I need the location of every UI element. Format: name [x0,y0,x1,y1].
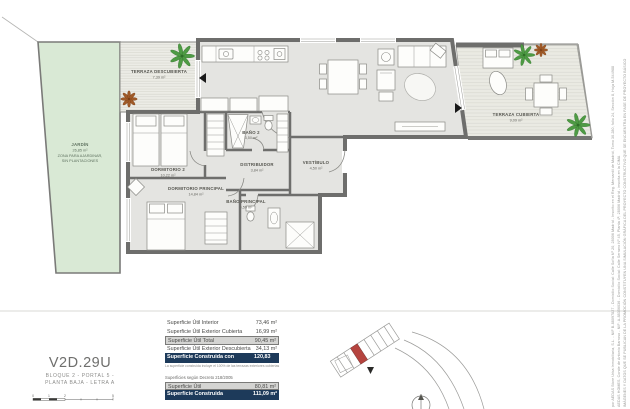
room-label-vestibulo: VESTÍBULO [303,160,330,165]
room-label-jardin: JARDÍN [71,142,88,147]
room-area-terraza-descubierta: 7,39 m² [153,76,167,80]
legal-disclaimer: por AEDAS Store Urba Inmobiliaria, S.L. … [611,9,628,407]
wardrobe [205,212,227,244]
ottoman [379,92,393,101]
chair [320,79,327,89]
row-label: Superficie Construida [167,390,223,400]
row-value: 73,46 m² [256,319,277,328]
scale-label: 2 [64,394,66,398]
shower [286,222,314,248]
pillow [136,116,156,126]
room-area-terraza-cubierta: 9,09 m² [510,119,524,123]
table-row: Superficie Útil Exterior Descubierta 34,… [165,345,279,354]
chair [540,75,552,82]
table-row-built: Superficie Construida con Comunes 120,83… [165,353,279,363]
room-area-jardin: 26,85 m² [73,149,89,153]
chair [560,88,567,100]
scale-bar: 0 1 2 5 [32,394,114,400]
washbasin [250,116,261,124]
table-row: Superficie Útil Exterior Cubierta 16,99 … [165,328,279,337]
room-area-bano-principal: 4,59 m² [240,206,254,210]
room-label-bano-principal: BAÑO PRINCIPAL [226,199,266,204]
outdoor-table [534,83,558,107]
table-row-decree: Superficie Construida 111,09 m² [165,390,279,400]
row-label: Superficie Útil Total [168,337,214,344]
row-value: 111,09 m² [253,390,277,400]
room-label-terraza-descubierta: TERRAZA DESCUBIERTA [131,69,187,74]
chair [360,79,367,89]
row-label: Superficie Útil Exterior Cubierta [167,328,242,337]
site-plan [330,323,484,409]
kitchen-counter [202,46,288,62]
room-label-dormitorio-principal: DORMITORIO PRINCIPAL [168,186,224,191]
unit-id-block: V2D.29U BLOQUE 2 - PORTAL 5 - PLANTA BAJ… [40,355,120,386]
sink-icon [219,49,233,59]
row-value: 34,13 m² [256,345,277,354]
dining-table [328,60,358,94]
decree-heading: Superficies según Decreto 218/2005 [165,375,279,380]
wardrobe [207,114,224,156]
room-label-dormitorio2: DORMITORIO 2 [151,167,185,172]
hall-closet [277,114,288,152]
side-table [378,49,394,65]
chair [540,108,552,115]
scale-label: 0 [32,394,34,398]
row-label: Superficie Útil Exterior Descubierta [167,345,251,354]
round-plant-icon [534,43,548,57]
table-row-decree: Superficie Útil 80,81 m² [165,382,279,391]
room-note2-jardin: SIN PLANTACIONES [62,159,99,163]
room-area-distribuidor: 3,84 m² [251,169,265,173]
surface-table: Superficie Útil Interior 73,46 m² Superf… [165,319,279,400]
room-area-vestibulo: 4,50 m² [310,167,324,171]
room-note-jardin: ZONA PARA AJARDINAR, [58,154,103,158]
cabinet [230,98,257,111]
row-value: 80,81 m² [255,383,276,390]
table-note: La superficie construida incluye el 100%… [165,364,279,368]
disclaimer-line: IMÁGENES Y DATOS QUE SE PUBLICAN DE LA P… [623,9,629,407]
table-row: Superficie Útil Interior 73,46 m² [165,319,279,328]
unit-code: V2D.29U [40,355,120,371]
room-label-distribuidor: DISTRIBUIDOR [240,162,274,167]
pillow [168,204,183,213]
oven-icon [274,49,285,60]
toilet [264,116,273,131]
room-area-bano2: 3,50 m² [245,136,259,140]
floor-plan-sheet: JARDÍN 26,85 m² ZONA PARA AJARDINAR, SIN… [0,0,630,409]
room-area-dormitorio2: 10,22 m² [161,174,177,178]
row-label: Superficie Útil Interior [167,319,219,328]
pillow [486,50,497,57]
compass-icon [412,394,430,409]
row-value: 16,99 m² [256,328,277,337]
floor-plan-drawing: JARDÍN 26,85 m² ZONA PARA AJARDINAR, SIN… [0,0,630,409]
scale-label: 1 [48,394,50,398]
table-row-total: Superficie Útil Total 90,45 m² [165,336,279,345]
unit-pointer [367,367,374,374]
round-plant-icon [121,91,138,108]
disclaimer-line: por AEDAS Store Urba Inmobiliaria, S.L. … [611,9,617,407]
room-label-bano2: BAÑO 2 [242,130,260,135]
chair [320,64,327,74]
room-area-dormitorio-principal: 14,84 m² [189,193,205,197]
chair [526,88,533,100]
row-value: 90,45 m² [255,337,276,344]
room-label-terraza-cubierta: TERRAZA CUBIERTA [493,112,540,117]
pillow [164,116,184,126]
plot-boundary-line [2,17,38,42]
cabinet [201,98,228,111]
washbasin [268,208,280,228]
row-value: 120,83 m² [254,353,277,363]
cabinet [259,96,288,111]
pillow [499,50,510,57]
pillow [150,204,165,213]
row-label: Superficie Útil [168,383,201,390]
unit-location-line1: BLOQUE 2 - PORTAL 5 - [40,373,120,379]
chair [360,64,367,74]
row-label: Superficie Construida con Comunes [167,353,254,363]
scale-label: 5 [112,394,114,398]
unit-location-line2: PLANTA BAJA - LETRA A [40,380,120,386]
